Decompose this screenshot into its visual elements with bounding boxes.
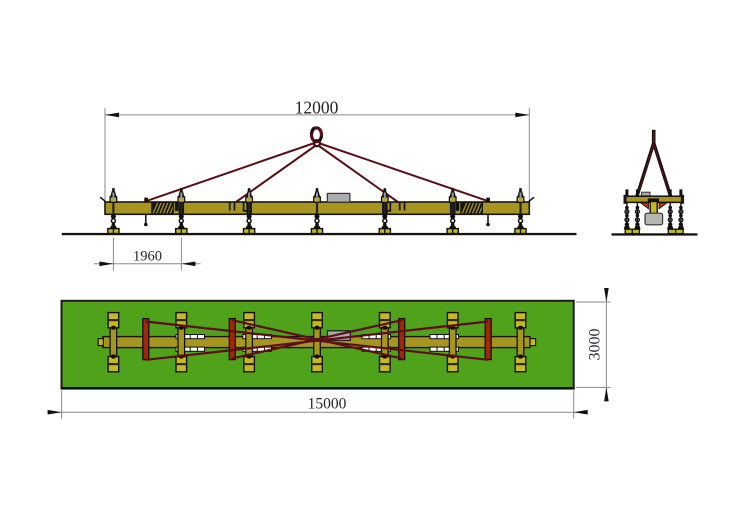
svg-text:12000: 12000 bbox=[295, 97, 339, 117]
svg-text:15000: 15000 bbox=[308, 395, 347, 412]
svg-text:1960: 1960 bbox=[133, 249, 162, 265]
svg-text:3000: 3000 bbox=[587, 329, 604, 361]
